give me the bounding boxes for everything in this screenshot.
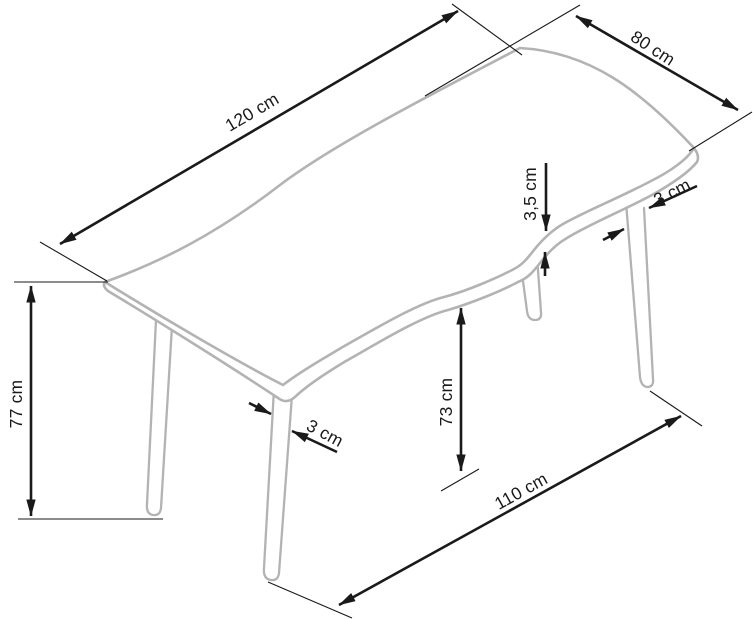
dim-label-length: 120 cm [222, 89, 283, 136]
dim-line-leg-span-110 [339, 416, 681, 605]
dim-line-leg-left-a [249, 403, 271, 414]
extension-line [268, 582, 352, 618]
dim-label-leg-span: 110 cm [491, 468, 551, 513]
extension-line [40, 242, 107, 281]
table-leg-front-left [264, 389, 292, 580]
dimension-diagram: 120 cm 80 cm 77 cm 3,5 cm 3 cm 3 cm 73 c… [0, 0, 753, 619]
floor-reference-tick [441, 469, 479, 491]
dim-label-clearance: 73 cm [436, 378, 456, 427]
table [104, 48, 698, 580]
table-top [104, 48, 698, 401]
diagram-canvas: 120 cm 80 cm 77 cm 3,5 cm 3 cm 3 cm 73 c… [0, 0, 753, 619]
dim-label-top-thickness: 3,5 cm [520, 167, 540, 221]
table-leg-back-left [147, 320, 172, 515]
table-leg-front-right [626, 202, 653, 387]
extension-line [650, 391, 702, 426]
dim-label-height: 77 cm [6, 380, 26, 429]
dim-label-width: 80 cm [627, 26, 679, 69]
extension-line [689, 112, 752, 151]
extension-line [452, 4, 522, 55]
dim-line-leg-right-a [603, 229, 624, 240]
